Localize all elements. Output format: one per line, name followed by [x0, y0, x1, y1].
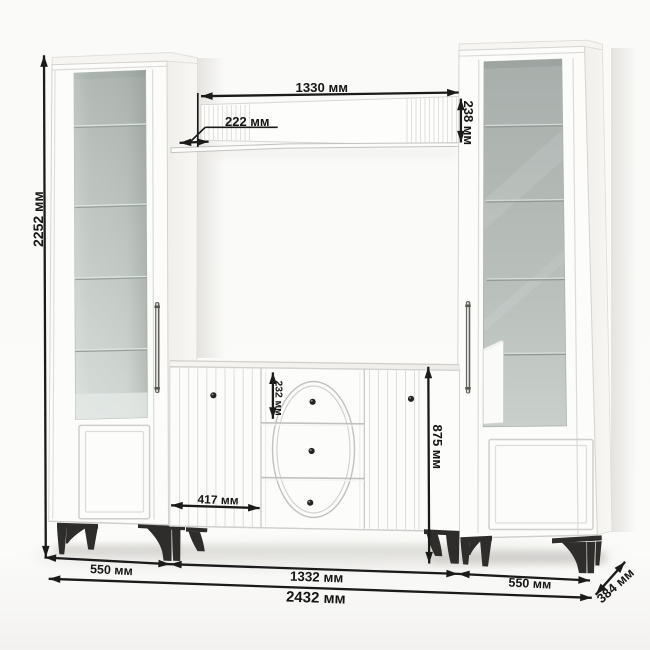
svg-text:550 мм: 550 мм: [90, 562, 134, 578]
svg-text:232 мм: 232 мм: [272, 381, 283, 416]
svg-text:417 мм: 417 мм: [197, 492, 239, 507]
svg-text:1330 мм: 1330 мм: [296, 80, 349, 95]
svg-text:2432 мм: 2432 мм: [286, 589, 346, 608]
svg-text:238 мм: 238 мм: [461, 101, 476, 146]
svg-text:222 мм: 222 мм: [225, 114, 270, 129]
svg-text:550 мм: 550 мм: [508, 576, 551, 592]
svg-text:2252 мм: 2252 мм: [30, 191, 46, 247]
svg-text:875 мм: 875 мм: [430, 425, 445, 470]
svg-text:1332 мм: 1332 мм: [290, 569, 344, 586]
